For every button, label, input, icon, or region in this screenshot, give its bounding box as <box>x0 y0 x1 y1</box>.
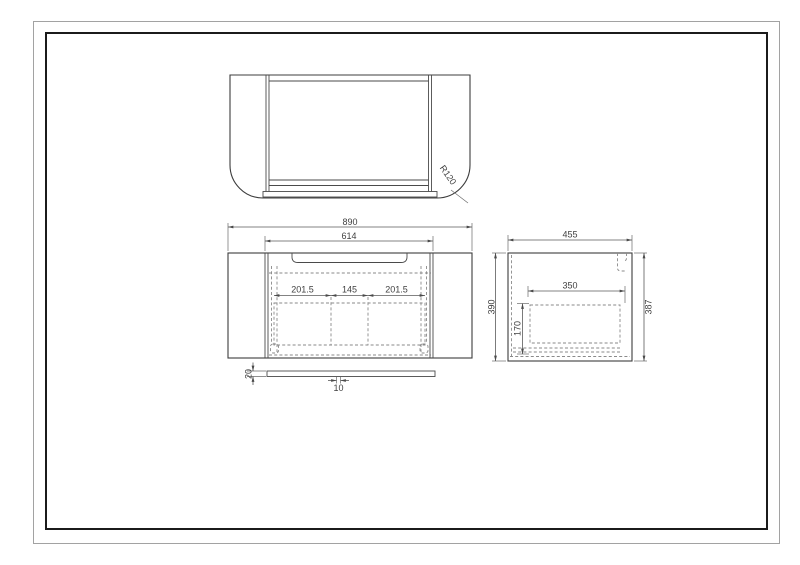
dim-height-right: 387 <box>634 253 654 361</box>
dim-label-height-left: 390 <box>487 299 497 314</box>
dim-height-left: 390 <box>487 253 507 361</box>
dim-label-opening-width: 614 <box>341 231 356 241</box>
front-bottom-shelf <box>267 371 435 377</box>
top-view: R120 <box>230 75 470 203</box>
front-panel-divider-left <box>265 253 268 358</box>
drawing-canvas: R120 <box>0 0 800 565</box>
dim-label-drawer-depth: 350 <box>562 281 577 291</box>
dim-label-height-right: 387 <box>644 299 654 314</box>
front-drawer-dividers-dashed <box>331 297 368 345</box>
side-view: 455 390 387 350 <box>487 230 654 362</box>
front-panel-divider-right <box>430 253 433 358</box>
dim-label-shelf-offset: 10 <box>333 383 343 393</box>
front-view: 890 614 201.5 145 201.5 <box>228 217 472 393</box>
front-handle-recess <box>292 253 407 263</box>
dim-label-corner-radius: R120 <box>438 163 459 186</box>
top-view-front-strip <box>263 192 437 198</box>
dim-opening-width: 614 <box>265 231 433 251</box>
dim-label-compartment-right: 201.5 <box>385 285 408 295</box>
drawing-sheet: R120 <box>0 0 800 565</box>
top-view-panel-divider-right <box>429 75 432 192</box>
top-view-panel-divider-left <box>266 75 269 192</box>
dim-compartment-widths: 201.5 145 201.5 <box>274 285 425 296</box>
dim-label-drawer-height: 170 <box>513 321 523 336</box>
dim-label-overall-depth: 455 <box>562 230 577 240</box>
dim-label-overall-width: 890 <box>342 217 357 227</box>
top-view-recess-edges <box>269 81 429 186</box>
dim-shelf-thickness: 20 <box>244 363 267 386</box>
side-cabinet-outline <box>508 253 632 361</box>
dim-overall-depth: 455 <box>508 230 632 252</box>
dim-drawer-height: 170 <box>513 304 530 355</box>
dim-drawer-depth: 350 <box>528 281 625 304</box>
dim-label-shelf-thickness: 20 <box>244 369 254 379</box>
dim-label-compartment-middle: 145 <box>342 285 357 295</box>
dim-label-compartment-left: 201.5 <box>291 285 314 295</box>
dim-shelf-offset: 10 <box>328 377 349 393</box>
front-hidden-lines <box>269 266 431 355</box>
side-drawer-box-dashed <box>530 305 620 343</box>
front-drawer-box-dashed <box>274 303 425 345</box>
radius-leader-line <box>451 190 468 203</box>
